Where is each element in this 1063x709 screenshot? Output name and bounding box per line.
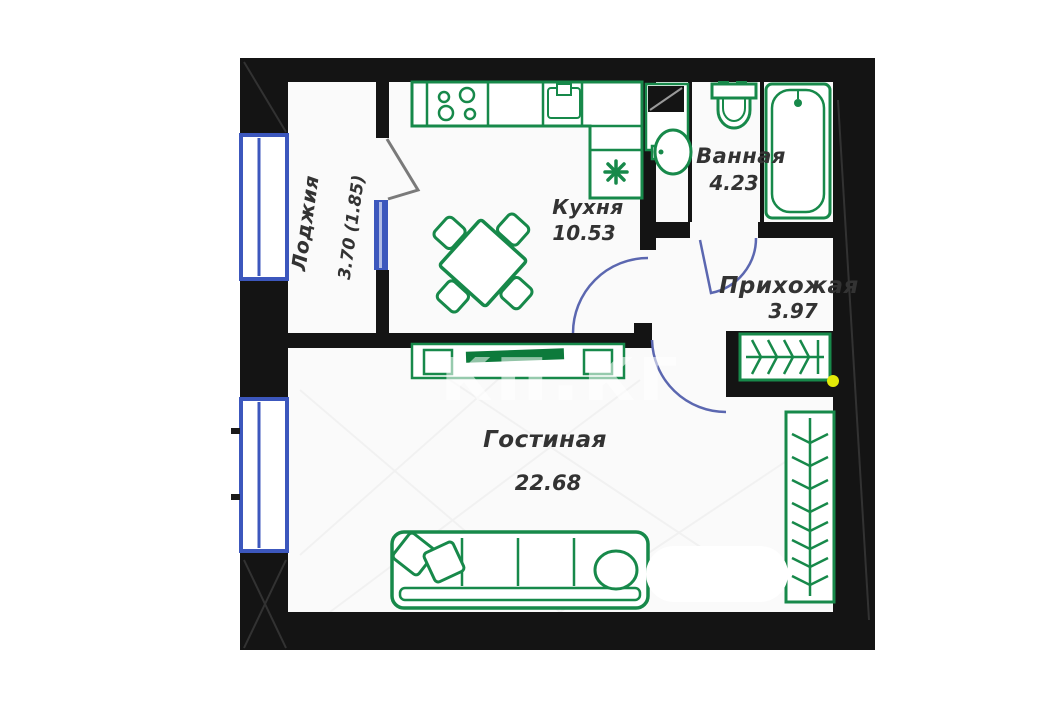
room-area-hallway: 3.97	[768, 299, 817, 323]
wall-bathroom-bottom-right	[758, 222, 833, 238]
hallway-wardrobe-icon	[740, 334, 830, 380]
room-label-bathroom: Ванная	[696, 144, 786, 168]
room-label-kitchen: Кухня	[552, 195, 623, 219]
room-label-hallway: Прихожая	[719, 273, 859, 299]
wall-left-middle	[240, 278, 288, 400]
floor-plan-screenshot: Кухня 10.53 Ванная 4.23 Прихожая 3.97 Го…	[0, 0, 1063, 709]
wall-top	[240, 58, 875, 82]
wall-bathroom-bottom-left	[656, 222, 690, 238]
sofa-icon	[392, 532, 648, 608]
room-label-living: Гостиная	[483, 427, 607, 453]
window-living-lower-icon	[231, 399, 287, 551]
room-area-living: 22.68	[515, 471, 581, 495]
wall-bottom	[240, 612, 875, 650]
window-loggia-upper-icon	[241, 135, 287, 279]
wall-loggia-divider-top	[376, 82, 389, 138]
window-loggia-divider-icon	[374, 200, 388, 270]
white-blob	[646, 546, 788, 602]
yellow-dot	[827, 375, 839, 387]
round-pillow-icon	[595, 551, 637, 589]
vent-star-icon	[605, 161, 627, 183]
room-area-bathroom: 4.23	[708, 171, 758, 195]
living-wardrobe-icon	[786, 412, 834, 602]
floor-plan-image: Кухня 10.53 Ванная 4.23 Прихожая 3.97 Го…	[0, 0, 1063, 709]
site-watermark: кп.кг	[440, 329, 680, 419]
room-area-kitchen: 10.53	[552, 221, 615, 245]
